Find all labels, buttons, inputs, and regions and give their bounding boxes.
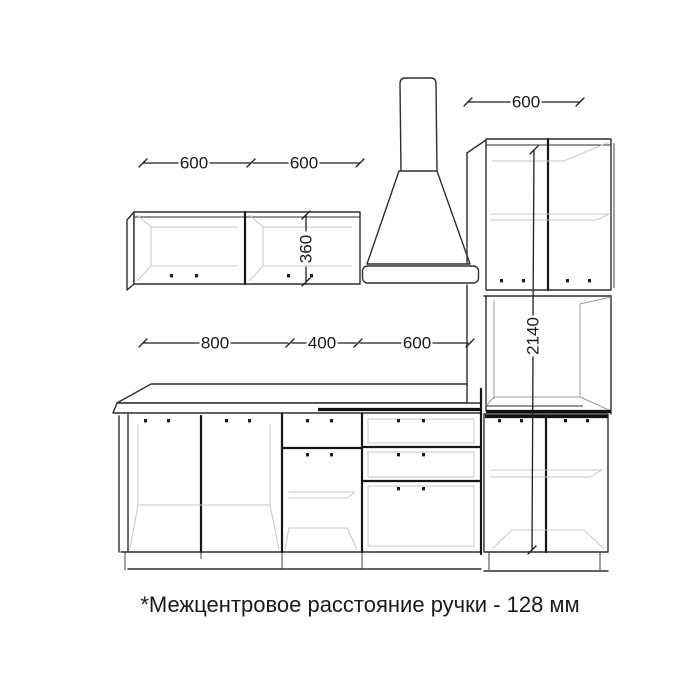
dimension-wall-cabinets: 600 600 xyxy=(139,154,364,173)
niche-interior xyxy=(486,297,611,411)
kitchen-technical-drawing: 600 600 600 360 800 400 600 xyxy=(0,0,700,700)
kitchen-drawing-canvas: 600 600 600 360 800 400 600 xyxy=(0,0,700,700)
dim-base-800-label: 800 xyxy=(201,334,229,353)
tall-cabinet-bottom-section xyxy=(484,414,608,571)
cooker-hood xyxy=(363,78,479,283)
base-plinth xyxy=(125,552,481,570)
base-cabinet-800 xyxy=(130,416,279,552)
dimension-tall-width: 600 xyxy=(464,93,584,112)
dim-base-600-label: 600 xyxy=(403,334,431,353)
dim-tall-width-label: 600 xyxy=(512,93,540,112)
dim-wall-right-label: 600 xyxy=(290,154,318,173)
base-cabinet-400 xyxy=(282,419,362,549)
handle-spacing-footnote: *Межцентровое расстояние ручки - 128 мм xyxy=(140,592,579,617)
tall-cabinet-plinth xyxy=(484,552,608,571)
dim-base-400-label: 400 xyxy=(308,334,336,353)
tall-cabinet-niche xyxy=(486,296,611,414)
countertop xyxy=(113,384,481,413)
dim-tall-height-label: 2140 xyxy=(524,317,543,355)
tall-cabinet-top-section xyxy=(484,139,614,296)
dim-wall-height-label: 360 xyxy=(297,235,316,263)
wall-cabinets xyxy=(127,212,360,290)
dimension-base-row: 800 400 600 xyxy=(139,334,474,353)
dim-wall-left-label: 600 xyxy=(180,154,208,173)
base-cabinet-600-drawers xyxy=(362,419,481,546)
base-cabinets xyxy=(119,389,481,570)
